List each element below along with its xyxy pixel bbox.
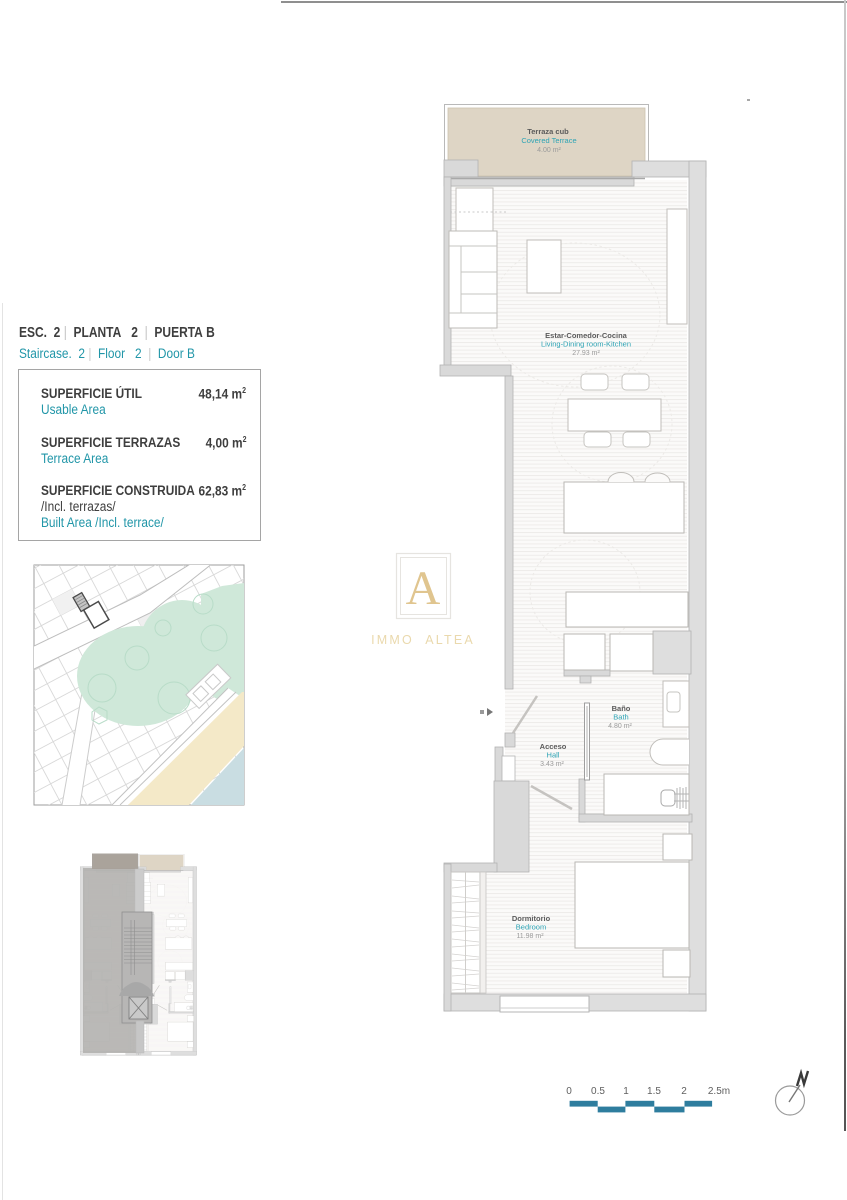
svg-text:Covered Terrace: Covered Terrace	[521, 136, 576, 145]
svg-text:2: 2	[681, 1086, 687, 1097]
svg-text:2.5m: 2.5m	[708, 1086, 730, 1097]
svg-text:Living-Dining room-Kitchen: Living-Dining room-Kitchen	[541, 340, 631, 349]
svg-text:1.5: 1.5	[647, 1086, 661, 1097]
svg-text:Bedroom: Bedroom	[516, 923, 546, 932]
svg-text:11.98 m²: 11.98 m²	[516, 933, 544, 940]
svg-text:0.5: 0.5	[591, 1086, 605, 1097]
svg-text:Hall: Hall	[547, 751, 560, 760]
svg-text:Bath: Bath	[613, 713, 628, 722]
svg-text:1: 1	[623, 1086, 629, 1097]
svg-text:4.80 m²: 4.80 m²	[608, 723, 632, 730]
svg-text:27.93 m²: 27.93 m²	[572, 350, 600, 357]
svg-text:3.43 m²: 3.43 m²	[540, 761, 564, 768]
svg-text:Terraza cub: Terraza cub	[527, 127, 569, 136]
svg-text:IMMO ALTEA: IMMO ALTEA	[371, 633, 475, 647]
svg-text:0: 0	[566, 1086, 572, 1097]
svg-text:4.00 m²: 4.00 m²	[537, 147, 561, 154]
svg-text:A: A	[406, 562, 441, 615]
